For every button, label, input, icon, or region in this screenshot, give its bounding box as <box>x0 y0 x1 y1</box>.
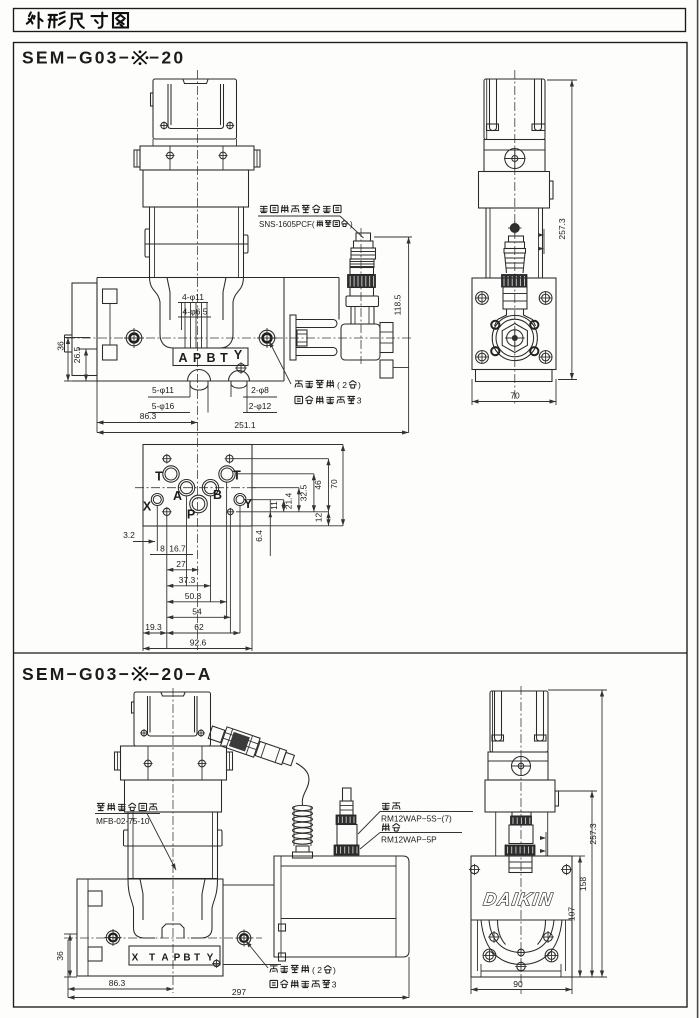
svg-text:107: 107 <box>567 907 577 921</box>
svg-text:−20−A: −20−A <box>149 664 213 684</box>
svg-text:−20: −20 <box>149 48 185 68</box>
svg-text:): ) <box>358 380 361 390</box>
svg-text:257.3: 257.3 <box>588 823 598 845</box>
svg-text:118.5: 118.5 <box>393 294 403 315</box>
svg-text:P: P <box>187 507 195 521</box>
svg-text:12: 12 <box>314 513 324 523</box>
svg-text:50.8: 50.8 <box>185 591 202 601</box>
svg-text:92.6: 92.6 <box>190 638 207 648</box>
svg-text:86.3: 86.3 <box>109 978 126 988</box>
svg-text:70: 70 <box>510 391 520 401</box>
svg-text:2-φ8: 2-φ8 <box>251 385 269 395</box>
svg-text:Y: Y <box>207 953 214 964</box>
svg-text:32.5: 32.5 <box>299 484 309 501</box>
svg-text:A: A <box>178 351 187 365</box>
svg-text:: 3: : 3 <box>352 396 362 406</box>
svg-text:70: 70 <box>329 479 339 489</box>
svg-text:26.5: 26.5 <box>72 346 82 363</box>
svg-text:P: P <box>193 351 201 365</box>
svg-text:16.7: 16.7 <box>169 544 186 554</box>
svg-text:X: X <box>143 499 152 513</box>
svg-text:B: B <box>183 953 190 964</box>
svg-text:( 2: ( 2 <box>337 380 347 390</box>
svg-text:B: B <box>206 351 215 365</box>
svg-text:RM12WAP−5P: RM12WAP−5P <box>381 835 437 845</box>
svg-text:( 2: ( 2 <box>312 965 322 975</box>
svg-text:27: 27 <box>176 559 186 569</box>
svg-text:DAIKIN: DAIKIN <box>482 889 555 909</box>
svg-text:4-φ6.5: 4-φ6.5 <box>183 307 208 317</box>
svg-text:RM12WAP−5S−(7): RM12WAP−5S−(7) <box>381 814 452 824</box>
svg-text:54: 54 <box>192 607 202 617</box>
svg-text:SNS-1605PCF(: SNS-1605PCF( <box>259 220 315 229</box>
svg-text:36: 36 <box>56 341 66 351</box>
svg-text:90: 90 <box>513 979 523 989</box>
svg-text:): ) <box>333 965 336 975</box>
svg-text:257.3: 257.3 <box>557 218 567 240</box>
svg-text:5-φ11: 5-φ11 <box>152 385 174 395</box>
svg-text:4-φ11: 4-φ11 <box>182 292 204 302</box>
svg-text:Y: Y <box>234 348 243 362</box>
svg-text:19.3: 19.3 <box>145 622 162 632</box>
svg-text:251.1: 251.1 <box>234 420 256 430</box>
svg-text:SEM−G03−: SEM−G03− <box>22 664 131 684</box>
svg-text:6.4: 6.4 <box>254 530 264 542</box>
svg-text:21.4: 21.4 <box>284 492 294 509</box>
svg-text:: 3: : 3 <box>327 980 337 990</box>
svg-text:P: P <box>174 953 181 964</box>
svg-text:SEM−G03−: SEM−G03− <box>22 48 131 68</box>
svg-text:T: T <box>149 953 155 964</box>
svg-text:2-φ12: 2-φ12 <box>249 401 272 411</box>
svg-text:5-φ16: 5-φ16 <box>152 401 175 411</box>
svg-text:3.2: 3.2 <box>123 530 135 540</box>
svg-text:MFB-02-75-10: MFB-02-75-10 <box>96 816 150 826</box>
svg-text:T: T <box>220 351 228 365</box>
svg-text:37.3: 37.3 <box>179 575 196 585</box>
svg-text:T: T <box>233 469 241 483</box>
svg-text:46: 46 <box>313 480 323 490</box>
svg-text:T: T <box>155 470 163 484</box>
svg-text:297: 297 <box>232 987 246 997</box>
svg-text:T: T <box>194 953 200 964</box>
svg-text:158: 158 <box>578 877 588 891</box>
svg-text:36: 36 <box>55 951 65 961</box>
svg-text:B: B <box>213 488 222 502</box>
svg-text:62: 62 <box>194 622 204 632</box>
svg-text:X: X <box>132 953 139 964</box>
svg-text:A: A <box>161 953 168 964</box>
svg-text:8: 8 <box>160 544 165 554</box>
svg-text:A: A <box>173 489 182 503</box>
